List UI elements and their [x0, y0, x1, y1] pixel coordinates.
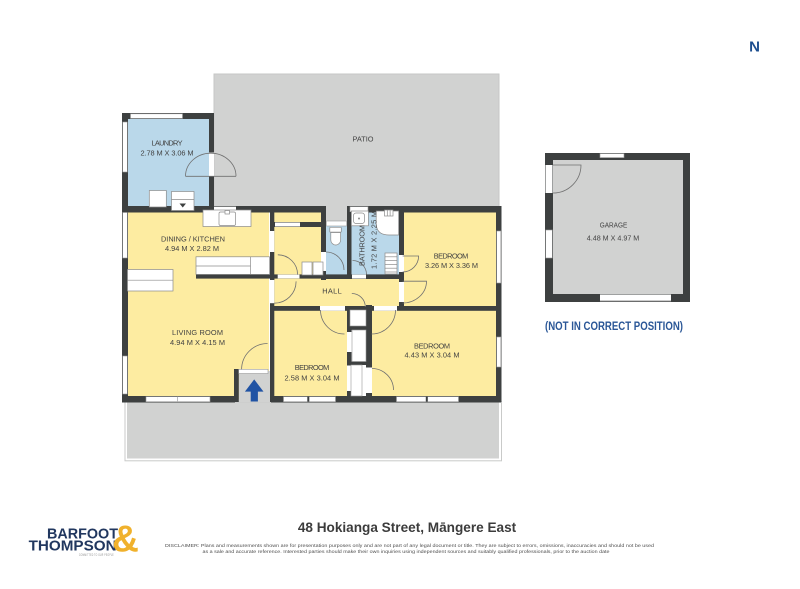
svg-text:DINING / KITCHEN: DINING / KITCHEN — [161, 235, 225, 244]
svg-text:4.48 M X 4.97 M: 4.48 M X 4.97 M — [587, 234, 640, 243]
svg-text:PATIO: PATIO — [353, 135, 374, 144]
svg-text:THOMPSON: THOMPSON — [29, 538, 117, 555]
svg-text:2.78 M X 3.06 M: 2.78 M X 3.06 M — [141, 149, 194, 158]
svg-text:4.43 M X 3.04 M: 4.43 M X 3.04 M — [405, 351, 460, 360]
svg-text:48 Hokianga Street, Māngere Ea: 48 Hokianga Street, Māngere East — [298, 520, 517, 535]
svg-text:LAUNDRY: LAUNDRY — [152, 139, 183, 148]
svg-text:N: N — [749, 39, 760, 56]
svg-text:DISCLAIMER: Plans and measurem: DISCLAIMER: Plans and measurements shown… — [165, 543, 654, 548]
svg-text:1.72 M X 2.25 M: 1.72 M X 2.25 M — [370, 211, 379, 269]
svg-text:as a sale and accurate referen: as a sale and accurate reference. Intere… — [203, 549, 610, 554]
svg-text:LIVING ROOM: LIVING ROOM — [172, 328, 223, 337]
svg-text:BEDROOM: BEDROOM — [434, 252, 469, 261]
svg-text:4.94 M X 2.82 M: 4.94 M X 2.82 M — [165, 244, 219, 253]
svg-text:&: & — [112, 519, 139, 560]
svg-text:HALL: HALL — [322, 287, 342, 296]
svg-text:BATHROOM: BATHROOM — [358, 225, 367, 266]
svg-text:BEDROOM: BEDROOM — [414, 342, 450, 351]
svg-text:(NOT IN CORRECT POSITION): (NOT IN CORRECT POSITION) — [545, 319, 683, 333]
svg-text:4.94 M X 4.15 M: 4.94 M X 4.15 M — [170, 338, 225, 347]
svg-text:GARAGE: GARAGE — [600, 221, 628, 230]
svg-text:COMMITTED TO OUR PEOPLE: COMMITTED TO OUR PEOPLE — [79, 553, 114, 557]
svg-text:BEDROOM: BEDROOM — [295, 363, 330, 372]
svg-text:3.26 M X 3.36 M: 3.26 M X 3.36 M — [425, 261, 478, 270]
svg-text:2.58 M X 3.04 M: 2.58 M X 3.04 M — [285, 374, 340, 383]
